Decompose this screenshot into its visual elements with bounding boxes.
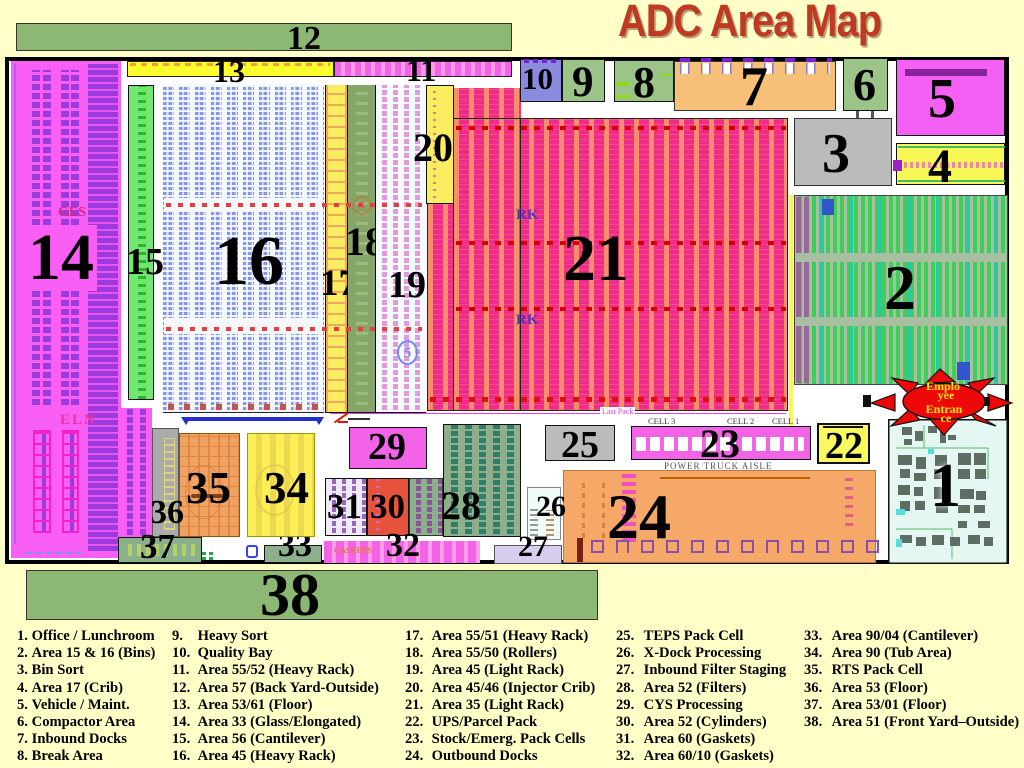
svg-text:ce: ce [941, 411, 952, 425]
svg-text:yee: yee [938, 388, 955, 402]
